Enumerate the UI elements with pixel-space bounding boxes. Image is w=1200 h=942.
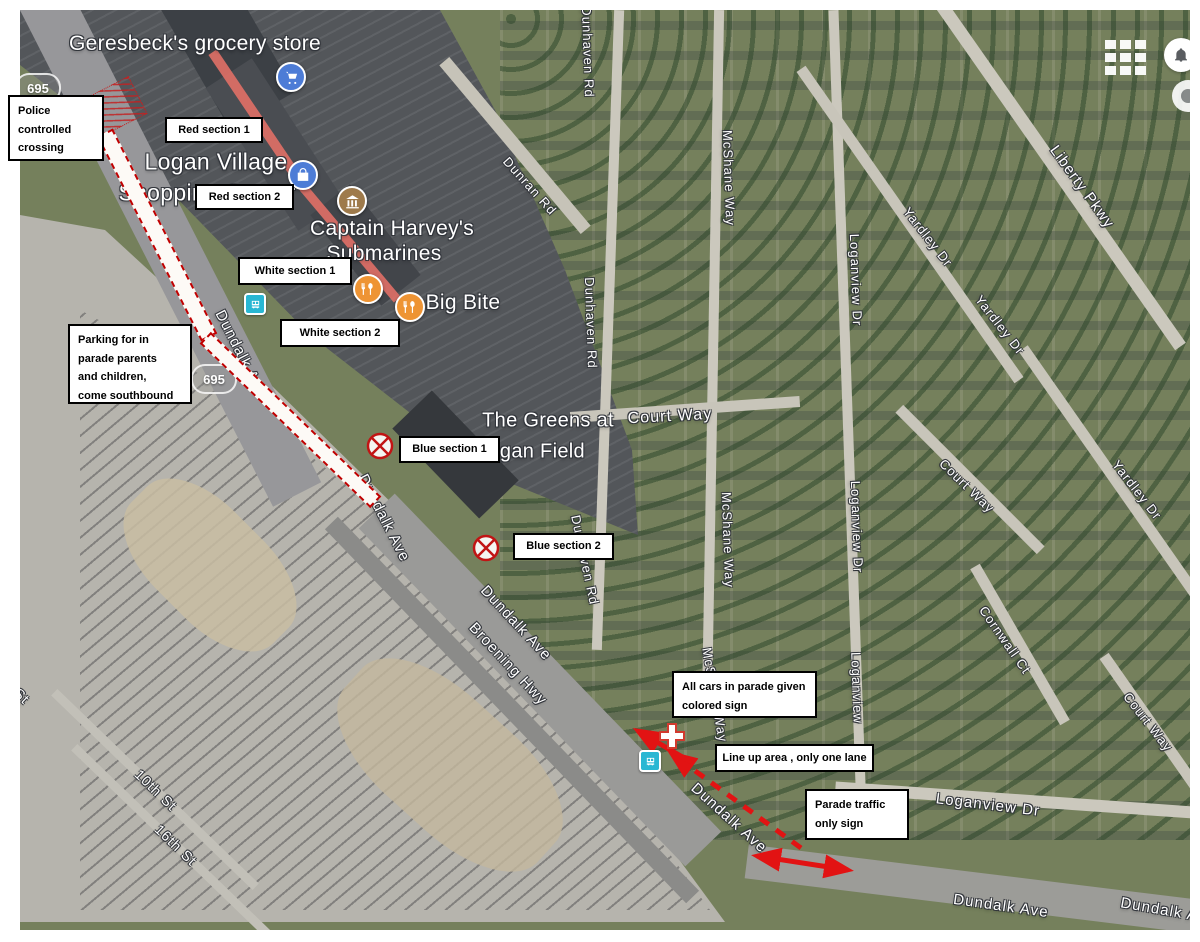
annotation-red-section-2: Red section 2 xyxy=(195,184,294,210)
satellite-map[interactable]: 695 695 Geresbeck's grocery store Logan … xyxy=(20,10,1190,930)
parade-entry-double-arrow xyxy=(757,856,848,870)
bus-stop-icon[interactable] xyxy=(244,293,266,315)
annotation-white-section-1: White section 1 xyxy=(238,257,352,285)
crossing-marker-blue-1 xyxy=(368,434,392,458)
shopping-cart-icon[interactable] xyxy=(276,62,306,92)
annotation-white-section-2: White section 2 xyxy=(280,319,400,347)
annotation-blue-section-1: Blue section 1 xyxy=(399,436,500,463)
first-aid-cross-icon xyxy=(658,722,686,755)
notifications-bell-icon[interactable] xyxy=(1164,38,1190,72)
annotation-police-crossing: Police controlled crossing xyxy=(8,95,104,161)
restaurant-icon[interactable] xyxy=(353,274,383,304)
annotation-red-section-1: Red section 1 xyxy=(165,117,263,143)
route-arrows-overlay xyxy=(20,10,1190,930)
annotation-parade-traffic: Parade traffic only sign xyxy=(805,789,909,840)
annotation-blue-section-2: Blue section 2 xyxy=(513,533,614,560)
museum-icon[interactable] xyxy=(337,186,367,216)
crossing-marker-blue-2 xyxy=(474,536,498,560)
annotation-parking: Parking for in parade parents and childr… xyxy=(68,324,192,404)
parade-route-map-page: 695 695 Geresbeck's grocery store Logan … xyxy=(0,0,1200,942)
annotation-line-up: Line up area , only one lane xyxy=(715,744,874,772)
annotation-all-cars: All cars in parade given colored sign xyxy=(672,671,817,718)
apps-grid-icon[interactable] xyxy=(1105,40,1146,75)
restaurant-icon[interactable] xyxy=(395,292,425,322)
